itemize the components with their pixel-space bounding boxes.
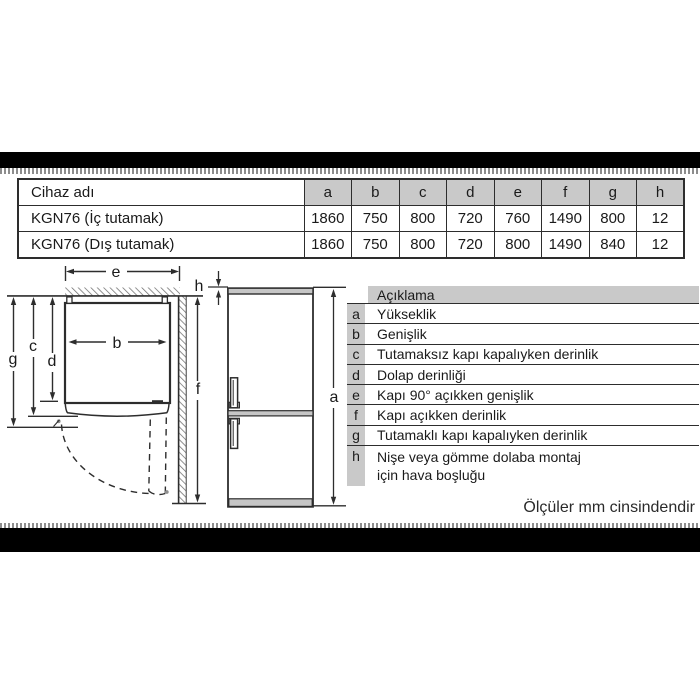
dim-header-f: f bbox=[542, 179, 590, 206]
legend-row: e Kapı 90° açıkken genişlik bbox=[347, 384, 699, 404]
device-dimension-table: Cihaz adı a b c d e f g h KGN76 (İç tuta… bbox=[17, 178, 685, 259]
legend-key: g bbox=[347, 426, 365, 445]
dim-value-cell: 1490 bbox=[542, 232, 590, 259]
door-open-dashed bbox=[62, 418, 167, 495]
dim-value-cell: 1860 bbox=[304, 206, 352, 232]
lower-door-handle bbox=[231, 419, 238, 449]
legend-row: h Nişe veya gömme dolaba montaj için hav… bbox=[347, 445, 699, 486]
dim-label-a: a bbox=[330, 389, 339, 406]
installation-diagram: e h g c d b f a bbox=[0, 260, 350, 516]
table-row: KGN76 (Dış tutamak) 1860 750 800 720 800… bbox=[18, 232, 684, 259]
dimension-f bbox=[172, 297, 206, 504]
top-black-bar bbox=[0, 152, 700, 168]
fridge-front-view bbox=[228, 288, 313, 507]
dim-label-b: b bbox=[113, 335, 122, 352]
legend-table: Açıklama a Yükseklik b Genişlik c Tutama… bbox=[347, 286, 699, 486]
dim-value-cell: 1860 bbox=[304, 232, 352, 259]
dim-label-e: e bbox=[112, 264, 121, 281]
dim-header-c: c bbox=[399, 179, 447, 206]
top-dither-strip bbox=[0, 168, 700, 174]
dim-value-cell: 800 bbox=[399, 232, 447, 259]
dim-value-cell: 720 bbox=[447, 232, 495, 259]
legend-row: b Genişlik bbox=[347, 323, 699, 343]
legend-text: Kapı 90° açıkken genişlik bbox=[368, 385, 699, 404]
door-swing-arc bbox=[62, 425, 150, 494]
dim-header-g: g bbox=[589, 179, 637, 206]
legend-key: e bbox=[347, 385, 365, 404]
front-body bbox=[228, 288, 313, 507]
legend-key: b bbox=[347, 324, 365, 343]
wall-hatching-top bbox=[65, 288, 180, 296]
dim-value-cell: 720 bbox=[447, 206, 495, 232]
dim-label-f: f bbox=[196, 381, 201, 398]
legend-key: a bbox=[347, 304, 365, 323]
legend-text: Tutamaksız kapı kapalıyken derinlik bbox=[368, 345, 699, 364]
dim-value-cell: 800 bbox=[494, 232, 542, 259]
dim-value-cell: 1490 bbox=[542, 206, 590, 232]
dim-header-b: b bbox=[352, 179, 400, 206]
dim-header-d: d bbox=[447, 179, 495, 206]
legend-key: f bbox=[347, 405, 365, 424]
device-name-cell: KGN76 (İç tutamak) bbox=[18, 206, 304, 232]
dim-value-cell: 840 bbox=[589, 232, 637, 259]
device-name-cell: KGN76 (Dış tutamak) bbox=[18, 232, 304, 259]
dim-label-c: c bbox=[29, 338, 37, 355]
table-header-row: Cihaz adı a b c d e f g h bbox=[18, 179, 684, 206]
dim-value-cell: 750 bbox=[352, 206, 400, 232]
legend-text: Tutamaklı kapı kapalıyken derinlik bbox=[368, 426, 699, 445]
dimension-d bbox=[40, 297, 58, 401]
dimension-h bbox=[208, 271, 228, 305]
device-name-header: Cihaz adı bbox=[18, 179, 304, 206]
dim-header-h: h bbox=[637, 179, 685, 206]
bottom-black-bar bbox=[0, 528, 700, 552]
legend-text: Genişlik bbox=[368, 324, 699, 343]
legend-key: d bbox=[347, 365, 365, 384]
dim-value-cell: 760 bbox=[494, 206, 542, 232]
dim-header-a: a bbox=[304, 179, 352, 206]
units-note: Ölçüler mm cinsindendir bbox=[523, 499, 695, 517]
top-view bbox=[7, 288, 203, 504]
dim-label-h: h bbox=[195, 278, 204, 295]
dim-label-g: g bbox=[9, 351, 18, 368]
spec-sheet-page: Cihaz adı a b c d e f g h KGN76 (İç tuta… bbox=[0, 0, 700, 700]
dim-label-d: d bbox=[48, 353, 57, 370]
spacer-right bbox=[162, 297, 167, 303]
dimension-e bbox=[66, 266, 180, 281]
front-plinth bbox=[229, 499, 312, 507]
legend-text: Nişe veya gömme dolaba montaj için hava … bbox=[368, 446, 699, 486]
legend-header-row: Açıklama bbox=[347, 286, 699, 303]
legend-row: d Dolap derinliği bbox=[347, 364, 699, 384]
dim-value-cell: 800 bbox=[589, 206, 637, 232]
front-top-cap bbox=[228, 288, 313, 294]
legend-row: a Yükseklik bbox=[347, 303, 699, 323]
legend-key: c bbox=[347, 345, 365, 364]
legend-header: Açıklama bbox=[368, 286, 699, 303]
upper-door-handle bbox=[231, 378, 238, 408]
legend-text: Dolap derinliği bbox=[368, 365, 699, 384]
dim-value-cell: 800 bbox=[399, 206, 447, 232]
legend-text: Yükseklik bbox=[368, 304, 699, 323]
fridge-top-view-body bbox=[65, 303, 170, 403]
legend-row: c Tutamaksız kapı kapalıyken derinlik bbox=[347, 344, 699, 364]
door-closed-outline bbox=[65, 403, 169, 416]
table-row: KGN76 (İç tutamak) 1860 750 800 720 760 … bbox=[18, 206, 684, 232]
legend-key: h bbox=[347, 446, 365, 486]
legend-row: g Tutamaklı kapı kapalıyken derinlik bbox=[347, 425, 699, 445]
dim-header-e: e bbox=[494, 179, 542, 206]
door-divider bbox=[228, 411, 313, 416]
legend-row: f Kapı açıkken derinlik bbox=[347, 404, 699, 424]
spacer-left bbox=[67, 297, 72, 303]
legend-text: Kapı açıkken derinlik bbox=[368, 405, 699, 424]
dim-value-cell: 12 bbox=[637, 232, 685, 259]
dim-value-cell: 750 bbox=[352, 232, 400, 259]
dim-value-cell: 12 bbox=[637, 206, 685, 232]
wall-hatching-side bbox=[179, 296, 187, 504]
